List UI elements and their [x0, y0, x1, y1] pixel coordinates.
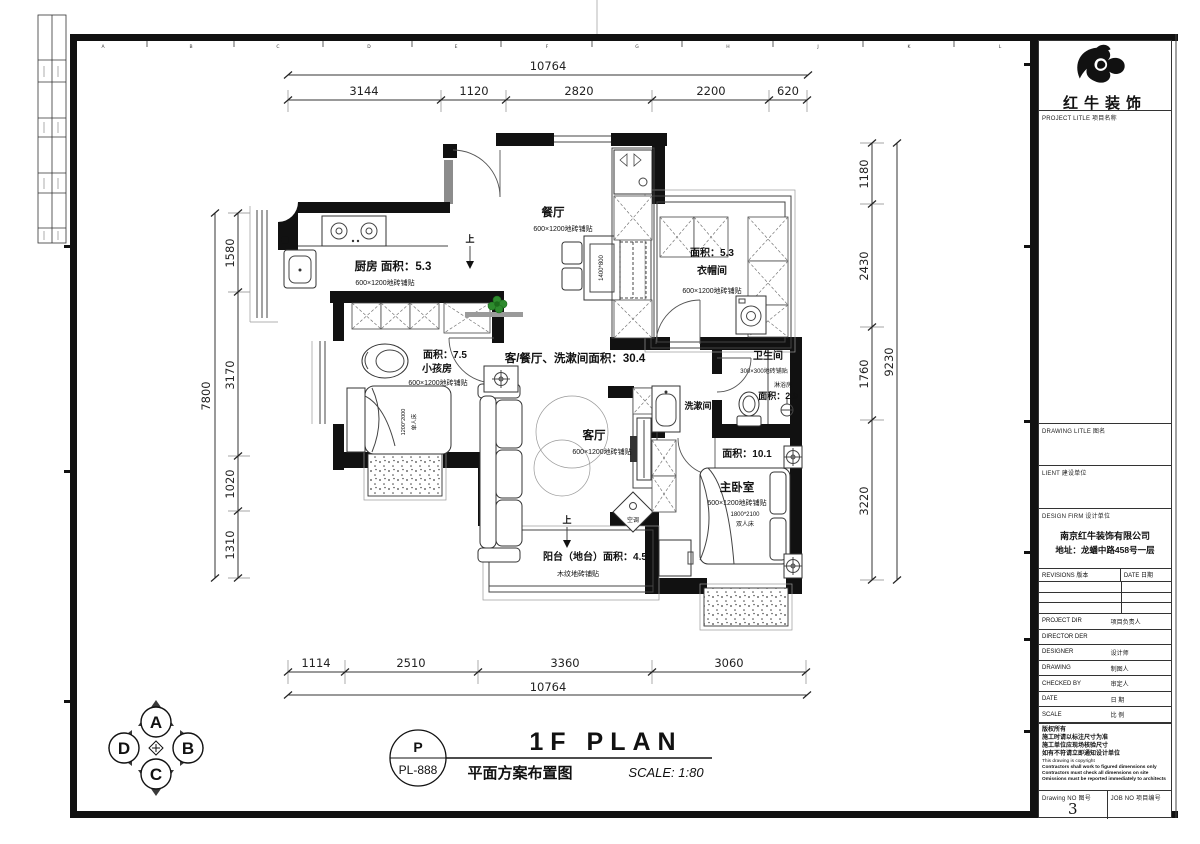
dim-right-total: 9230 — [882, 347, 896, 376]
dresser — [659, 540, 693, 576]
balcony-label: 阳台（地台）面积：4.5 — [543, 550, 647, 563]
revisions-date-label: DATE 日期 — [1121, 569, 1171, 581]
step-up-marker: 上 — [465, 233, 474, 269]
kids-label: 小孩房 — [421, 362, 452, 375]
dim-left-seg: 1310 — [223, 530, 237, 559]
shelf — [465, 312, 523, 317]
dim-bottom-total: 10764 — [530, 680, 567, 694]
grid-letter: H — [726, 44, 729, 50]
row-drawing: DRAWING 制图人 — [1039, 661, 1171, 677]
bathroom-finish: 300×300地砖铺贴 — [740, 367, 788, 375]
grid-letter: J — [816, 44, 818, 50]
kitchen-finish: 600×1200地砖铺贴 — [355, 278, 414, 287]
row-label-cn: 审定人 — [1111, 679, 1129, 688]
dining-table: 1400*800 — [562, 236, 620, 300]
copyright-notes: 版权所有 施工时请以标注尺寸为准 施工单位应现场核验尺寸 如有不符请立即通知设计… — [1039, 724, 1171, 791]
drawing-number-section: Drawing NO 图号 3 JOB NO 项目编号 — [1039, 791, 1171, 819]
row-label-cn: 比 例 — [1111, 710, 1125, 719]
master-area: 面积：10.1 — [722, 447, 772, 460]
title-block: 红牛装饰 PROJECT LITLE 项目名称 DRAWING LITLE 图名… — [1038, 40, 1172, 818]
svg-text:上: 上 — [562, 514, 571, 525]
dim-right-seg: 3220 — [857, 486, 871, 515]
dim-top-seg: 620 — [777, 84, 799, 98]
dim-bottom: 1114 2510 3360 3060 10764 — [284, 656, 811, 699]
grid-letter: F — [546, 44, 549, 50]
design-firm-label: DESIGN FIRM 设计单位 — [1039, 509, 1171, 520]
row-scale: SCALE 比 例 — [1039, 707, 1171, 723]
note-line: 施工时请以标注尺寸为准 — [1042, 735, 1169, 743]
plan-code: PL-888 — [399, 763, 438, 777]
drawing-title-label: DRAWING LITLE 图名 — [1039, 424, 1171, 435]
kitchen-fixtures — [284, 216, 448, 288]
job-no-label: JOB NO 项目编号 — [1108, 791, 1171, 802]
plan-title-en: 1F PLAN — [529, 728, 682, 756]
dim-top: 10764 3144 1120 2820 2200 620 — [284, 59, 812, 112]
plan-scale: SCALE: 1:80 — [628, 765, 704, 780]
revision-row — [1039, 582, 1171, 593]
grid-letter: A — [101, 44, 105, 50]
dim-top-seg: 2820 — [564, 84, 593, 98]
client-label: LIENT 建设单位 — [1039, 466, 1171, 477]
bathroom-door — [717, 358, 751, 392]
nightstand — [784, 554, 802, 578]
compass-d: D — [118, 739, 130, 758]
row-project-dir: PROJECT DIR 项目负责人 — [1039, 614, 1171, 630]
shower-label: 淋浴房 — [774, 381, 792, 389]
plan-code-letter: P — [413, 739, 422, 755]
revision-row — [1039, 603, 1171, 613]
cloakroom-area: 面积：5.3 — [690, 246, 734, 259]
dim-top-total: 10764 — [530, 59, 567, 73]
row-label-en: SCALE — [1039, 712, 1111, 718]
living-finish: 600×1200地砖铺贴 — [572, 447, 631, 456]
drawing-title: P PL-888 1F PLAN 平面方案布置图 SCALE: 1:80 — [390, 728, 712, 786]
note-line: Omissions must be reported immediately t… — [1042, 777, 1169, 783]
dining-finish: 600×1200地砖铺贴 — [533, 224, 592, 233]
dining-table-size: 1400*800 — [599, 254, 605, 280]
row-label-cn: 制图人 — [1111, 664, 1129, 673]
revisions-section: REVISIONS 版本 DATE 日期 — [1039, 569, 1171, 614]
revision-row — [1039, 593, 1171, 604]
dim-top-seg: 2200 — [696, 84, 725, 98]
bull-logo-icon — [1070, 43, 1140, 89]
note-line: 如有不符请立即通知设计单位 — [1042, 751, 1169, 759]
washing-machine-icon — [736, 296, 766, 334]
dim-right: 1180 2430 1760 3220 9230 — [857, 140, 901, 584]
compass-logo: A B C D — [108, 700, 204, 796]
kitchen-label: 厨房 面积：5.3 — [355, 259, 432, 273]
row-label-en: PROJECT DIR — [1039, 618, 1111, 624]
compass-c: C — [150, 765, 162, 784]
design-firm-section: DESIGN FIRM 设计单位 南京红牛装饰有限公司 地址：龙蟠中路458号一… — [1039, 509, 1171, 569]
drawing-sheet: A B C D E F G H J K L — [0, 0, 1200, 844]
dim-bottom-seg: 1114 — [301, 656, 330, 670]
dim-top-seg: 1120 — [459, 84, 488, 98]
dim-top-seg: 3144 — [349, 84, 378, 98]
row-label-en: DESIGNER — [1039, 649, 1111, 655]
dim-bottom-seg: 3060 — [714, 656, 743, 670]
cloakroom-label: 衣帽间 — [697, 264, 727, 277]
kids-bay-window — [368, 454, 442, 496]
row-label-cn: 日 期 — [1111, 695, 1125, 704]
dining-label: 餐厅 — [541, 205, 565, 219]
row-checked-by: CHECKED BY 审定人 — [1039, 676, 1171, 692]
row-label-cn: 设计师 — [1111, 648, 1129, 657]
cradle-icon — [362, 344, 408, 378]
kids-bed-size: 1200*2000 — [401, 409, 407, 436]
nightstand — [784, 446, 802, 468]
entry-door — [453, 150, 500, 197]
master-label: 主卧室 — [720, 480, 755, 494]
dim-bottom-seg: 2510 — [396, 656, 425, 670]
grid-letter: K — [908, 44, 912, 50]
drawing-no-value: 3 — [1039, 802, 1107, 817]
grid-letters: A B C D E F G H J K L — [101, 41, 1001, 50]
compass-a: A — [150, 713, 162, 732]
end-table — [484, 366, 518, 392]
master-finish: 600×1200地砖铺贴 — [707, 498, 766, 507]
svg-text:上: 上 — [465, 233, 474, 244]
grid-letter: C — [276, 44, 279, 50]
row-date: DATE 日 期 — [1039, 692, 1171, 708]
drawing-title-section: DRAWING LITLE 图名 — [1039, 424, 1171, 466]
sink-icon — [284, 250, 316, 288]
bathroom-label: 卫生间 — [753, 349, 783, 362]
cloakroom-finish: 600×1200地砖铺贴 — [682, 286, 741, 295]
brand-name: 红牛装饰 — [1039, 92, 1171, 113]
plan-title-cn: 平面方案布置图 — [467, 764, 572, 782]
master-bed-type: 双人床 — [736, 520, 754, 528]
project-title-section: PROJECT LITLE 项目名称 — [1039, 111, 1171, 424]
master-bay-window — [704, 588, 788, 626]
floor-plan-svg: A B C D E F G H J K L — [0, 0, 1200, 844]
row-designer: DESIGNER 设计师 — [1039, 645, 1171, 661]
note-line: 版权所有 — [1042, 727, 1169, 735]
dim-left-total: 7800 — [199, 381, 213, 410]
brand-logo-section: 红牛装饰 — [1039, 41, 1171, 111]
kids-finish: 600×1200地砖铺贴 — [408, 378, 467, 387]
balcony-step-marker: 上 — [562, 514, 571, 548]
stove-icon — [322, 216, 386, 246]
company-address: 地址：龙蟠中路458号一层 — [1039, 544, 1171, 556]
grid-letter: L — [999, 44, 1002, 50]
personnel-rows: PROJECT DIR 项目负责人 DIRECTOR DER DESIGNER … — [1039, 614, 1171, 724]
dim-left: 7800 1580 3170 1020 1310 — [199, 210, 250, 582]
washbasin-icon — [652, 386, 680, 432]
dim-left-seg: 3170 — [223, 360, 237, 389]
cloakroom-cabinets — [660, 217, 788, 337]
master-furniture — [652, 440, 802, 578]
row-label-en: DATE — [1039, 696, 1111, 702]
row-label-en: CHECKED BY — [1039, 681, 1111, 687]
master-bed-size: 1800*2100 — [730, 512, 760, 518]
kids-room-furniture: 1200*2000 单人床 — [347, 303, 451, 454]
dim-right-seg: 2430 — [857, 251, 871, 280]
floor-plan: 1400*800 — [250, 133, 802, 630]
project-title-label: PROJECT LITLE 项目名称 — [1039, 111, 1171, 122]
ac-label: 空调 — [627, 516, 639, 524]
grid-letter: G — [635, 44, 639, 50]
grid-letter: E — [455, 44, 458, 50]
company-name: 南京红牛装饰有限公司 — [1039, 529, 1171, 542]
row-director: DIRECTOR DER — [1039, 630, 1171, 646]
hall-area-label: 客/餐厅、洗漱间面积：30.4 — [504, 351, 646, 365]
client-section: LIENT 建设单位 — [1039, 466, 1171, 509]
dim-right-seg: 1180 — [857, 159, 871, 188]
row-label-en: DRAWING — [1039, 665, 1111, 671]
balcony-finish: 木纹地砖铺贴 — [557, 569, 599, 578]
dim-left-seg: 1020 — [223, 469, 237, 498]
entry-corridor: 上 — [444, 233, 523, 333]
compass-b: B — [182, 739, 194, 758]
dim-bottom-seg: 3360 — [550, 656, 579, 670]
note-line: 施工单位应现场核验尺寸 — [1042, 743, 1169, 751]
grid-letter: D — [367, 44, 371, 50]
revisions-label: REVISIONS 版本 — [1039, 569, 1121, 581]
dim-left-seg: 1580 — [223, 238, 237, 267]
living-label: 客厅 — [582, 428, 606, 442]
margin-boxes — [38, 15, 66, 243]
kids-bed-type: 单人床 — [410, 413, 418, 430]
dim-right-seg: 1760 — [857, 359, 871, 388]
shower-area: 面积：2.9 — [758, 390, 798, 401]
kids-bed: 1200*2000 单人床 — [347, 386, 451, 454]
sofa — [478, 384, 522, 562]
row-label-en: DIRECTOR DER — [1039, 634, 1111, 640]
grid-letter: B — [189, 44, 192, 50]
row-label-cn: 项目负责人 — [1111, 617, 1141, 626]
washroom-label: 洗漱间 — [684, 400, 711, 411]
kids-area: 面积：7.5 — [423, 348, 467, 361]
